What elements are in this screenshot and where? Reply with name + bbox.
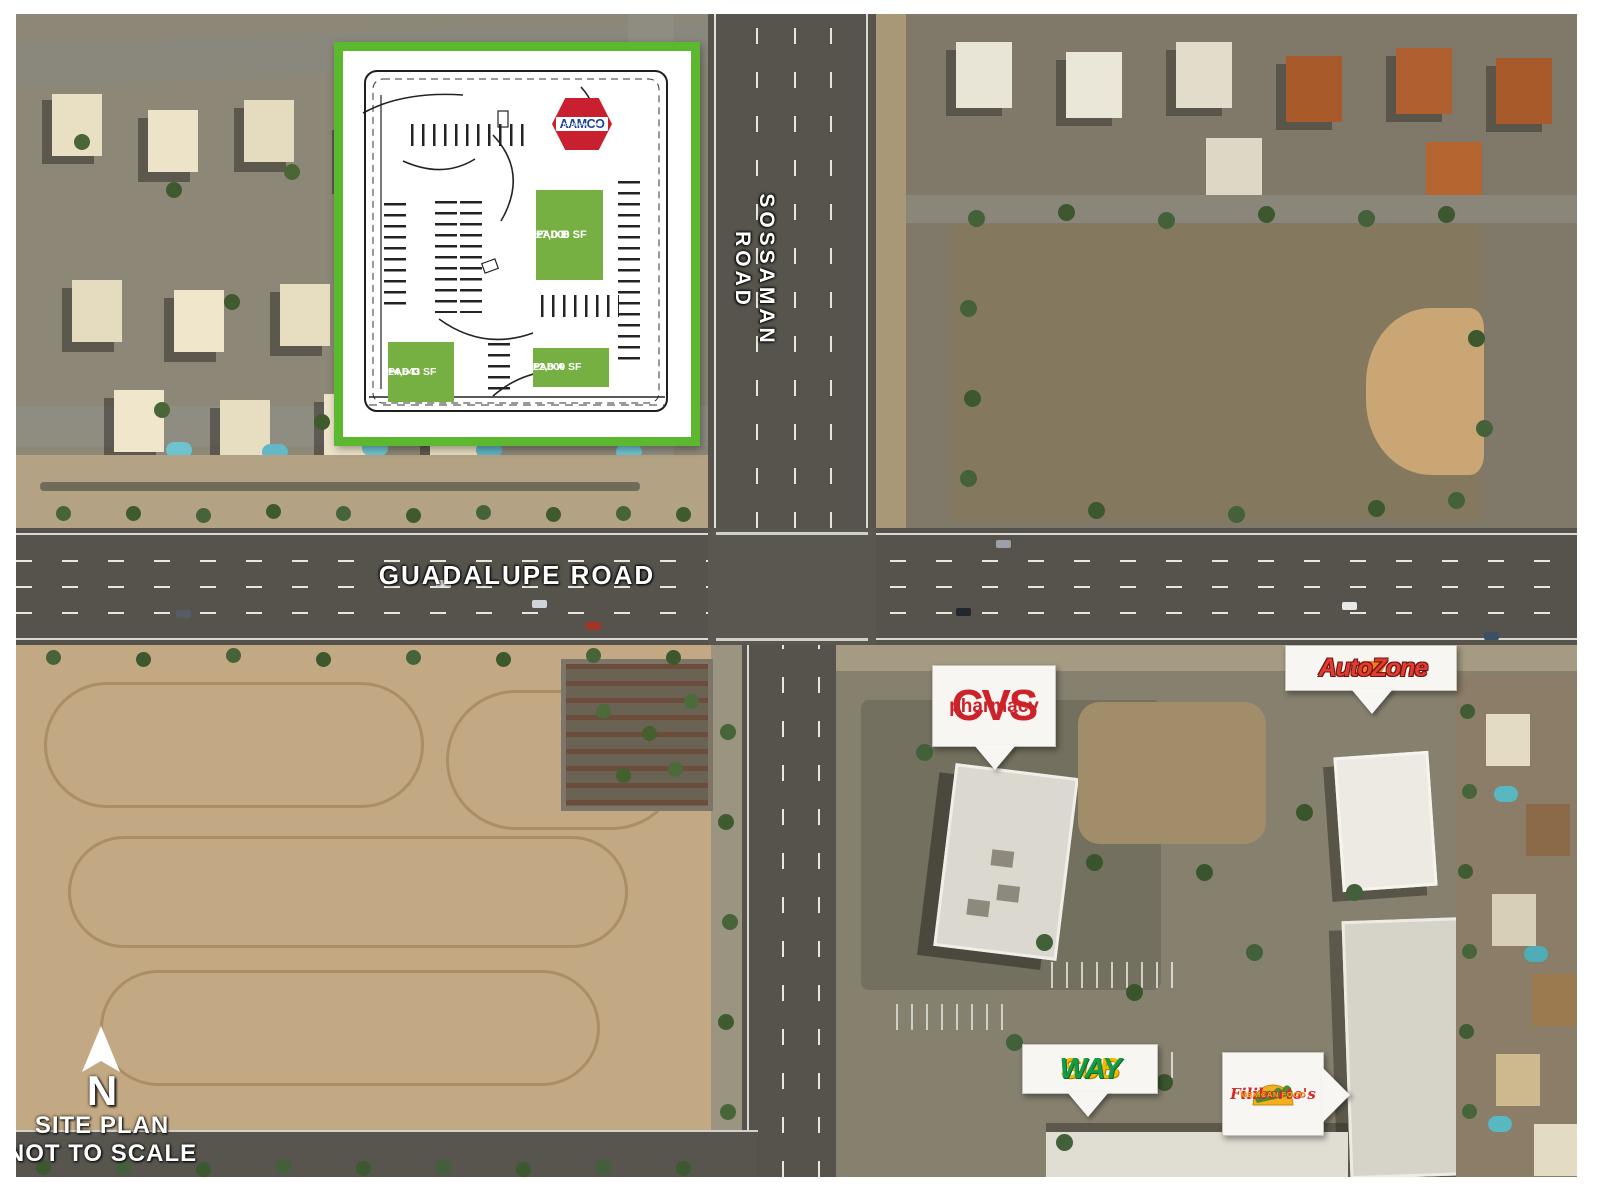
lane-marking [818,645,820,1177]
pad-a: PAD A ±2,800 SF [533,348,609,387]
dirt-shoulder [711,645,742,1177]
pad-size: ±7,000 SF [536,229,587,242]
cvs-pharmacy-text: pharmacy [949,697,1039,716]
autozone-callout: AutoZone [1285,645,1457,691]
road-edge-line [747,645,749,1177]
grading-tracks [44,682,424,808]
trees [1460,704,1475,719]
callout-pointer [1322,1067,1350,1123]
houses [1486,714,1530,766]
lane-marking [830,14,832,528]
filibertos-callout: Filiberto's MEXICAN FOOD [1222,1052,1324,1136]
retail-strip-building [1046,1132,1348,1177]
palm-trees [596,704,611,719]
filibertos-subtitle: MEXICAN FOOD [1240,1090,1306,1099]
lane-marking [782,645,784,1177]
trees [56,506,71,521]
north-letter: N [52,1070,152,1112]
site-plan-inset: PAD B ±7,000 SF PAD D ±4,643 SF PAD A ±2… [334,42,700,446]
trees [74,134,90,150]
drainage-path [40,482,640,491]
intersection [708,528,876,645]
callout-pointer [974,745,1016,770]
parking-stalls [896,1004,1016,1030]
callout-pointer [1067,1092,1109,1117]
autozone-building [1333,751,1437,892]
dirt-patch [1078,702,1266,844]
parking-stalls [1051,962,1183,988]
callout-pointer [1351,689,1393,714]
trees [916,744,933,761]
street [906,195,1577,223]
grading-tracks [100,970,600,1086]
cvs-building [933,763,1078,961]
trees [968,210,985,227]
autozone-logo-text: AutoZone [1319,654,1428,683]
baseball-diamond [1366,308,1484,475]
crosswalk [716,532,868,535]
guadalupe-road-label: GUADALUPE ROAD [357,560,677,591]
subway-callout: SUB WAY [1022,1044,1158,1094]
houses [956,42,1012,108]
pad-size: ±2,800 SF [533,361,581,373]
pad-d: PAD D ±4,643 SF [388,342,454,402]
aerial-photo: PAD B ±7,000 SF PAD D ±4,643 SF PAD A ±2… [16,14,1577,1177]
site-plan-caption: SITE PLAN [16,1112,192,1140]
aamco-bottom-text: TOTAL CAR CARE [562,122,602,127]
dirt-shoulder [876,14,906,528]
backyard-pools [1494,786,1518,802]
tree-nursery-plot [561,659,713,811]
sossaman-road-label: SOSSAMAN ROAD [730,150,778,390]
rooftop-units [991,849,1015,868]
road-edge-line [866,14,868,528]
pad-b: PAD B ±7,000 SF [536,190,603,280]
not-to-scale-caption: NOT TO SCALE [16,1140,202,1168]
lane-marking [794,14,796,528]
cvs-callout: CVS pharmacy [932,665,1056,747]
pad-size: ±4,643 SF [388,366,436,378]
grading-tracks [68,836,628,948]
crosswalk [716,638,868,641]
trees [46,650,61,665]
subway-logo-text: WAY [1060,1053,1121,1086]
road-edge-line [714,14,716,528]
dirt-shoulder [16,455,708,528]
